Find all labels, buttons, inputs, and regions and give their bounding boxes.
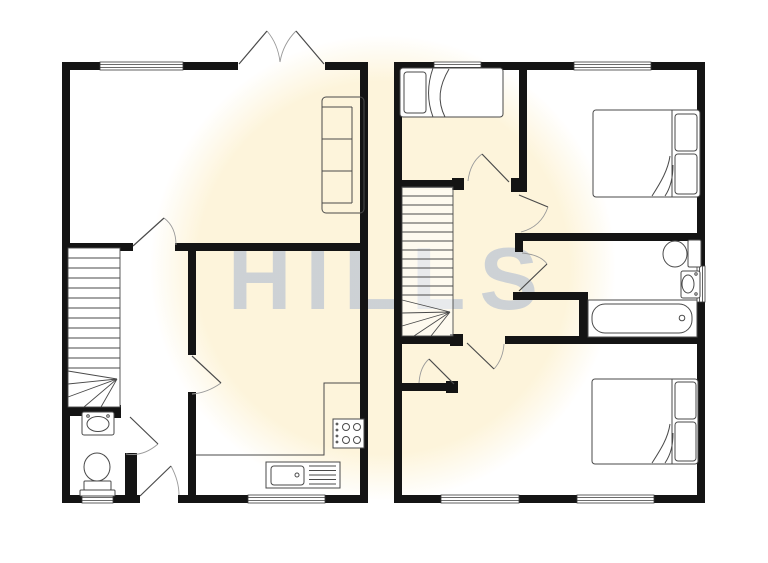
window xyxy=(248,495,325,503)
ground-floor-staircase-icon xyxy=(68,248,120,407)
double-bed-icon xyxy=(593,110,700,197)
door-arc xyxy=(267,31,280,62)
sink-icon xyxy=(266,462,340,488)
window xyxy=(574,62,651,70)
window xyxy=(441,495,519,503)
door-arc xyxy=(126,444,158,455)
window xyxy=(577,495,654,503)
first-floor-staircase-icon xyxy=(402,187,453,336)
door-leaf xyxy=(140,466,171,496)
toilet-icon xyxy=(80,453,115,496)
single-bed-icon xyxy=(400,68,503,117)
door-leaf xyxy=(130,417,158,444)
double-bed-icon xyxy=(592,379,698,464)
floorplan: HILLS xyxy=(0,0,768,563)
door-arc xyxy=(171,466,179,495)
basin-icon xyxy=(681,271,700,298)
window xyxy=(100,62,183,70)
bath-icon xyxy=(588,300,697,337)
hob-icon xyxy=(333,419,364,448)
toilet-icon xyxy=(663,240,701,267)
french-door-leaf xyxy=(239,31,267,64)
basin-icon xyxy=(82,412,114,435)
